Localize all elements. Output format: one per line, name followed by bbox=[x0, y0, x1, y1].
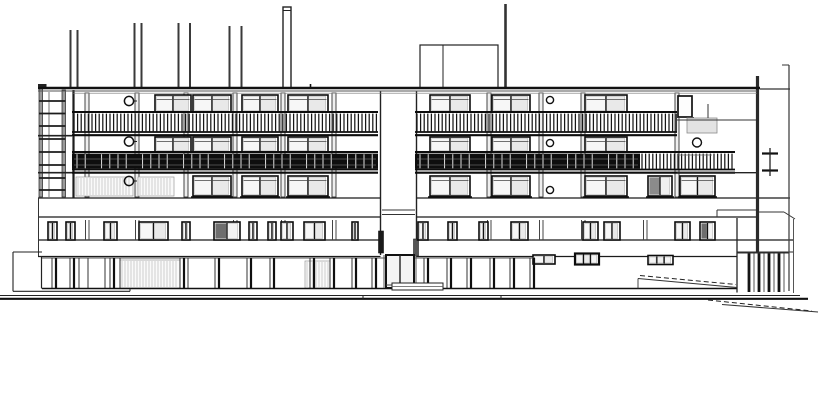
window-pane bbox=[677, 224, 682, 239]
window-pane bbox=[511, 178, 528, 195]
window-pane bbox=[216, 224, 227, 239]
drawn-rect bbox=[414, 239, 419, 256]
window-pane bbox=[585, 224, 590, 239]
circle-mark bbox=[546, 139, 553, 146]
window-pane bbox=[606, 97, 625, 111]
window-pane bbox=[591, 224, 596, 239]
window-pane bbox=[683, 224, 688, 239]
window-pane bbox=[657, 257, 664, 263]
window-pane bbox=[244, 97, 260, 111]
window-pane bbox=[290, 139, 308, 151]
window-pane bbox=[251, 224, 253, 239]
elevation-svg bbox=[0, 0, 826, 418]
window-pane bbox=[664, 257, 671, 263]
window-pane bbox=[450, 97, 468, 111]
window-pane bbox=[308, 139, 326, 151]
circle-mark bbox=[124, 96, 133, 105]
window-pane bbox=[513, 224, 519, 239]
window-pane bbox=[283, 224, 287, 239]
circle-mark bbox=[546, 96, 553, 103]
hatch-panel bbox=[305, 261, 330, 288]
drawn-rect bbox=[283, 7, 291, 88]
window-pane bbox=[591, 255, 597, 263]
window-pane bbox=[173, 139, 189, 151]
window-pane bbox=[308, 97, 326, 111]
hatch-panel bbox=[138, 177, 174, 196]
window-pane bbox=[212, 178, 229, 195]
window-pane bbox=[584, 255, 590, 263]
window-pane bbox=[494, 178, 511, 195]
window-pane bbox=[587, 139, 606, 151]
facade-pier bbox=[332, 93, 336, 197]
facade-pier bbox=[233, 93, 237, 197]
window-pane bbox=[212, 97, 229, 111]
facade-pier bbox=[487, 93, 491, 197]
window-pane bbox=[68, 224, 70, 239]
entrance-door bbox=[384, 255, 443, 290]
window-pane bbox=[698, 178, 713, 195]
window-pane bbox=[511, 97, 528, 111]
window-pane bbox=[195, 97, 212, 111]
window-pane bbox=[308, 178, 326, 195]
drawn-rect bbox=[678, 96, 692, 117]
window-pane bbox=[520, 224, 526, 239]
window-pane bbox=[606, 178, 625, 195]
window-pane bbox=[450, 139, 468, 151]
window-pane bbox=[157, 139, 173, 151]
circle-mark bbox=[546, 186, 553, 193]
window-pane bbox=[432, 178, 450, 195]
circle-mark bbox=[124, 137, 133, 146]
window-pane bbox=[420, 224, 423, 239]
window-pane bbox=[173, 97, 189, 111]
window-pane bbox=[682, 178, 697, 195]
left-side-ladder bbox=[38, 85, 72, 197]
window-pane bbox=[157, 97, 173, 111]
window-pane bbox=[432, 139, 450, 151]
facade-pier bbox=[281, 93, 285, 197]
drawn-line bbox=[722, 305, 818, 313]
window-pane bbox=[195, 139, 212, 151]
window-pane bbox=[290, 97, 308, 111]
window-pane bbox=[244, 139, 260, 151]
window-pane bbox=[154, 224, 166, 239]
window-pane bbox=[315, 224, 323, 239]
window-pane bbox=[650, 178, 660, 195]
circle-mark bbox=[693, 138, 702, 147]
window-pane bbox=[141, 224, 153, 239]
window-pane bbox=[260, 178, 276, 195]
window-pane bbox=[587, 97, 606, 111]
window-pane bbox=[481, 224, 483, 239]
window-pane bbox=[212, 139, 229, 151]
window-pane bbox=[50, 224, 52, 239]
drawn-rect bbox=[420, 45, 498, 88]
window-pane bbox=[450, 224, 452, 239]
window-pane bbox=[544, 257, 553, 263]
window-pane bbox=[432, 97, 450, 111]
window-pane bbox=[106, 224, 110, 239]
facade-pier bbox=[539, 93, 543, 197]
window-pane bbox=[660, 178, 670, 195]
window-pane bbox=[195, 178, 212, 195]
window-pane bbox=[290, 178, 308, 195]
elevation-drawing bbox=[0, 0, 826, 418]
roof-elements bbox=[38, 4, 790, 93]
window-pane bbox=[702, 224, 707, 239]
drawn-line bbox=[708, 300, 812, 311]
window-pane bbox=[612, 224, 618, 239]
window-pane bbox=[494, 97, 511, 111]
window-pane bbox=[270, 224, 272, 239]
window-pane bbox=[260, 139, 276, 151]
window-pane bbox=[227, 224, 238, 239]
hatch-panel bbox=[120, 260, 180, 288]
window-pane bbox=[708, 224, 713, 239]
drawn-rect bbox=[62, 90, 66, 197]
window-pane bbox=[535, 257, 544, 263]
window-pane bbox=[587, 178, 606, 195]
window-pane bbox=[511, 139, 528, 151]
window-pane bbox=[650, 257, 657, 263]
railing-dense-fill bbox=[415, 154, 640, 169]
window-pane bbox=[260, 97, 276, 111]
window-pane bbox=[244, 178, 260, 195]
window-pane bbox=[577, 255, 583, 263]
window-pane bbox=[450, 178, 468, 195]
window-pane bbox=[494, 139, 511, 151]
window-pane bbox=[606, 139, 625, 151]
drawn-rect bbox=[379, 231, 384, 253]
window-pane bbox=[184, 224, 186, 239]
window-pane bbox=[306, 224, 314, 239]
window-pane bbox=[606, 224, 612, 239]
